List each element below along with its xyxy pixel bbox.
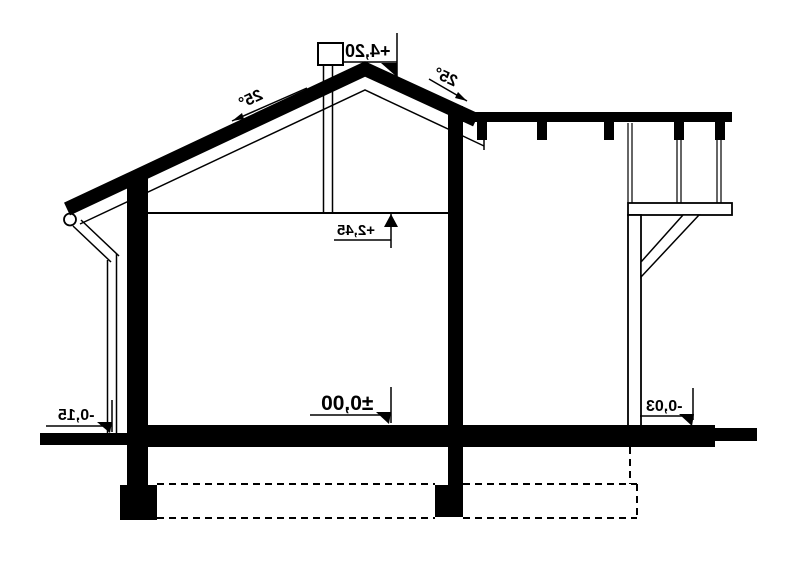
left-foundation-wall bbox=[127, 447, 148, 485]
ridge-level-label: +4,20 bbox=[337, 42, 398, 60]
floor-level-label: ±0,00 bbox=[307, 392, 388, 414]
central-foundation-wall bbox=[448, 447, 463, 485]
foundation-dashed-outline bbox=[157, 447, 637, 518]
right-ground-level-text: -0,03 bbox=[646, 399, 682, 415]
ceiling-level-label: +2,45 bbox=[326, 223, 386, 238]
terrace-level-text: -0,15 bbox=[58, 408, 94, 424]
central-footing bbox=[435, 485, 463, 517]
floor-slab bbox=[127, 425, 715, 447]
terrace-level-label: -0,15 bbox=[46, 407, 106, 424]
terrace-roof-joists bbox=[477, 122, 725, 140]
right-ground-slab bbox=[715, 428, 757, 441]
right-ground-level-label: -0,03 bbox=[634, 398, 694, 415]
terrace-post bbox=[628, 215, 641, 428]
floor-level-text: ±0,00 bbox=[321, 393, 373, 414]
section-linework bbox=[0, 0, 800, 566]
terrace-roof-slab bbox=[452, 112, 732, 122]
left-terrace-slab bbox=[40, 433, 127, 445]
central-wall bbox=[448, 106, 463, 447]
ceiling-level-text: +2,45 bbox=[337, 223, 375, 238]
terrace-beam bbox=[628, 203, 732, 215]
cross-section-drawing: +4,20 +2,45 ±0,00 -0,15 -0,03 25° 25° bbox=[0, 0, 800, 566]
left-footing bbox=[120, 485, 157, 520]
left-wall bbox=[127, 178, 148, 447]
knee-brace bbox=[641, 215, 699, 277]
ridge-level-text: +4,20 bbox=[345, 42, 391, 60]
